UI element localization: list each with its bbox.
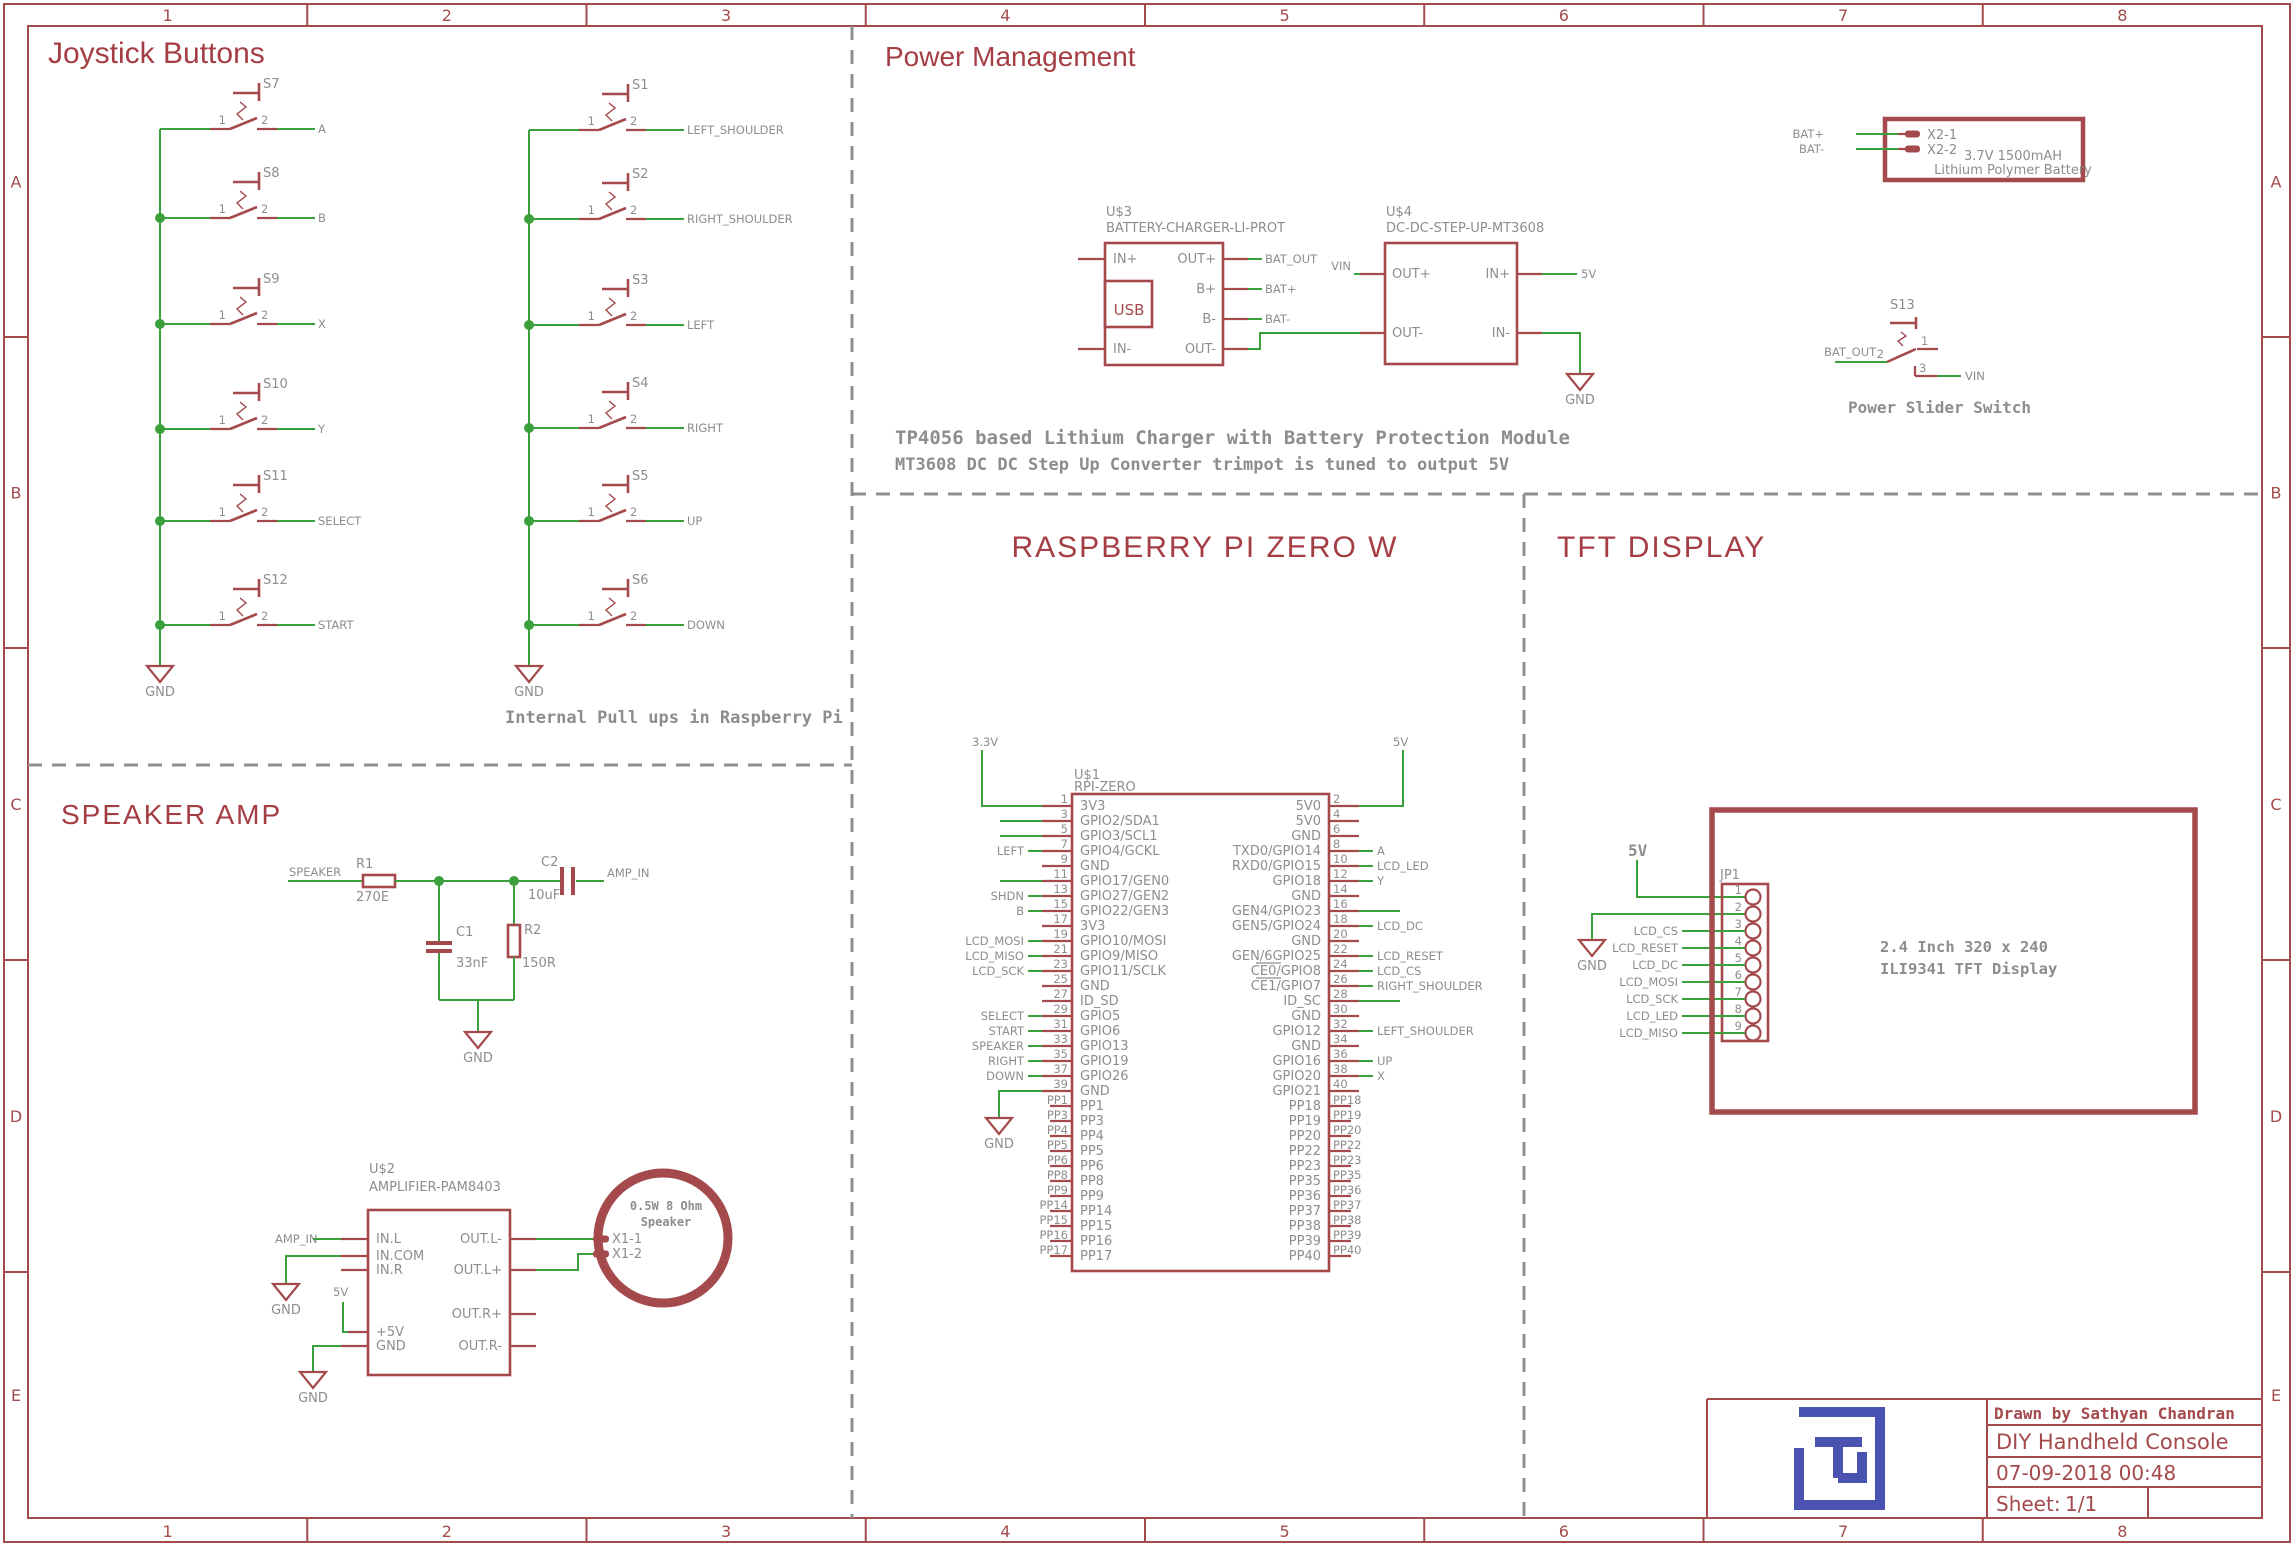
speaker-spec-line: Speaker bbox=[641, 1215, 692, 1229]
switch-s4[interactable]: 12S4 bbox=[579, 376, 649, 428]
gnd-label: GND bbox=[145, 685, 175, 700]
wire-path bbox=[1359, 750, 1403, 806]
ic-pin-label: PP40 bbox=[1289, 1249, 1321, 1264]
pin-number: 6 bbox=[1735, 968, 1742, 982]
connector-pin bbox=[593, 1236, 609, 1243]
pin-number: 27 bbox=[1053, 987, 1068, 1001]
battery-spec-line: Lithium Polymer Battery bbox=[1934, 163, 2092, 178]
power-caption-2: MT3608 DC DC Step Up Converter trimpot i… bbox=[895, 455, 1509, 475]
ic-pin-label: +5V bbox=[376, 1325, 404, 1340]
pin-number: 2 bbox=[1877, 347, 1884, 361]
pin-number: 1 bbox=[1735, 883, 1742, 897]
schematic-canvas: 1122334455667788AABBCCDDEEJoystick Butto… bbox=[0, 0, 2295, 1546]
pin-number: 1 bbox=[219, 113, 226, 127]
pin-number: 2 bbox=[630, 609, 637, 623]
rpi-section-title: RASPBERRY PI ZERO W bbox=[1012, 531, 1399, 564]
speaker-connector[interactable]: X1-1X1-20.5W 8 OhmSpeaker bbox=[593, 1173, 728, 1303]
switch-blade bbox=[230, 614, 257, 625]
frame-column-number: 2 bbox=[442, 1522, 452, 1541]
ic-u2-amplifier[interactable]: U$2AMPLIFIER-PAM8403IN.LIN.COMIN.R+5VGND… bbox=[341, 1162, 536, 1375]
connector-pin-circle bbox=[1746, 1009, 1761, 1024]
pin-number: PP15 bbox=[1039, 1213, 1068, 1227]
pin-number: 2 bbox=[1735, 900, 1742, 914]
switch-s5[interactable]: 12S5 bbox=[579, 469, 649, 521]
pin-number: 9 bbox=[1061, 852, 1068, 866]
ic-pin-label: GPIO22/GEN3 bbox=[1080, 904, 1169, 919]
gnd-label: GND bbox=[271, 1303, 301, 1318]
ic-pin-label: PP15 bbox=[1080, 1219, 1112, 1234]
gnd-label: GND bbox=[984, 1137, 1014, 1152]
pin-number: 2 bbox=[261, 505, 268, 519]
pin-number: PP39 bbox=[1333, 1228, 1362, 1242]
switch-spring bbox=[237, 191, 246, 209]
pin-number: 9 bbox=[1735, 1019, 1742, 1033]
ic-u4-boost-converter[interactable]: U$4DC-DC-STEP-UP-MT3608OUT+OUT-IN+IN- bbox=[1360, 205, 1544, 364]
pin-number: PP18 bbox=[1333, 1093, 1362, 1107]
ic-pin-label: PP9 bbox=[1080, 1189, 1104, 1204]
net-label: SELECT bbox=[318, 514, 362, 528]
switch-blade bbox=[599, 119, 626, 130]
switch-s6[interactable]: 12S6 bbox=[579, 573, 649, 625]
connector-pin-label: X2-1 bbox=[1927, 128, 1957, 143]
part-ref-label: R1 bbox=[356, 857, 373, 872]
frame-column-number: 7 bbox=[1838, 1522, 1848, 1541]
part-value-label: AMPLIFIER-PAM8403 bbox=[369, 1180, 501, 1195]
pin-number: 2 bbox=[261, 609, 268, 623]
ic-pin-label: B- bbox=[1202, 312, 1216, 327]
switch-spring bbox=[606, 298, 615, 316]
switch-ref-label: S1 bbox=[632, 78, 649, 93]
pin-number: 2 bbox=[630, 505, 637, 519]
net-label: LCD_DC bbox=[1632, 958, 1678, 972]
frame-column-number: 1 bbox=[163, 6, 173, 25]
pin-number: 18 bbox=[1333, 912, 1348, 926]
switch-blade bbox=[230, 510, 257, 521]
part-ref-label: U$3 bbox=[1106, 205, 1132, 220]
net-label: LCD_DC bbox=[1377, 919, 1423, 933]
resistor-body[interactable] bbox=[508, 925, 520, 957]
net-label: RIGHT bbox=[988, 1054, 1025, 1068]
ic-pin-label: IN.L bbox=[376, 1232, 402, 1247]
net-label: BAT_OUT bbox=[1824, 345, 1877, 359]
switch-ref-label: S11 bbox=[263, 469, 288, 484]
ic-pin-label: PP6 bbox=[1080, 1159, 1104, 1174]
net-label: BAT+ bbox=[1792, 127, 1824, 141]
gnd-label: GND bbox=[463, 1051, 493, 1066]
switch-blade bbox=[599, 614, 626, 625]
pin-number: 2 bbox=[630, 203, 637, 217]
ic-pin-label: OUT.R- bbox=[459, 1339, 503, 1354]
gnd-symbol[interactable] bbox=[147, 666, 173, 682]
switch-spring bbox=[237, 402, 246, 420]
pin-number: 21 bbox=[1053, 942, 1068, 956]
ic-pin-label: GPIO11/SCLK bbox=[1080, 964, 1166, 979]
ic-pin-label: ID_SD bbox=[1080, 994, 1119, 1009]
ic-pin-label: OUT.L- bbox=[460, 1232, 502, 1247]
net-label: LCD_MISO bbox=[1619, 1026, 1678, 1040]
ic-pin-label: B+ bbox=[1196, 282, 1216, 297]
net-label: DOWN bbox=[687, 618, 725, 632]
ic-pin-label: CE0/GPIO8 bbox=[1251, 964, 1321, 979]
pin-number: 1 bbox=[588, 505, 595, 519]
frame-column-number: 3 bbox=[721, 1522, 731, 1541]
ic-pin-label: RXD0/GPIO15 bbox=[1232, 859, 1321, 874]
connector-pin bbox=[1905, 146, 1920, 153]
pin-number: PP5 bbox=[1047, 1138, 1068, 1152]
speaker-spec-line: 0.5W 8 Ohm bbox=[630, 1199, 702, 1213]
pin-number: 2 bbox=[1333, 792, 1340, 806]
part-ref-label: R2 bbox=[524, 923, 541, 938]
ic-pin-label: GPIO20 bbox=[1272, 1069, 1321, 1084]
pin-number: PP35 bbox=[1333, 1168, 1362, 1182]
net-label: LCD_RESET bbox=[1377, 949, 1444, 963]
battery-spec-line: 3.7V 1500mAH bbox=[1964, 149, 2062, 164]
pin-number: PP9 bbox=[1047, 1183, 1068, 1197]
net-label: LCD_SCK bbox=[1626, 992, 1678, 1006]
ic-pin-label: GEN5/GPIO24 bbox=[1232, 919, 1321, 934]
net-label: DOWN bbox=[986, 1069, 1024, 1083]
pin-number: 3 bbox=[1735, 917, 1742, 931]
switch-s7[interactable]: 12S7 bbox=[210, 77, 280, 129]
frame-row-letter: A bbox=[11, 173, 22, 192]
net-label: X bbox=[318, 317, 326, 331]
gnd-symbol[interactable] bbox=[273, 1284, 299, 1300]
net-label: LCD_SCK bbox=[972, 964, 1024, 978]
net-label: START bbox=[318, 618, 354, 632]
pin-number: 20 bbox=[1333, 927, 1348, 941]
net-label: B bbox=[318, 211, 326, 225]
net-label: RIGHT_SHOULDER bbox=[687, 212, 793, 226]
switch-blade bbox=[599, 510, 626, 521]
pin-number: 8 bbox=[1333, 837, 1340, 851]
ic-pin-label: GND bbox=[376, 1339, 406, 1354]
capacitor-c2[interactable]: C210uF bbox=[528, 855, 573, 903]
ic-pin-label: GPIO21 bbox=[1272, 1084, 1321, 1099]
pin-number: 33 bbox=[1053, 1032, 1068, 1046]
net-label: LCD_MOSI bbox=[1619, 975, 1678, 989]
pin-number: 1 bbox=[588, 412, 595, 426]
pin-number: 38 bbox=[1333, 1062, 1348, 1076]
net-label: B bbox=[1016, 904, 1024, 918]
frame-inner bbox=[28, 26, 2262, 1518]
net-label: 5V bbox=[333, 1285, 348, 1299]
part-value-label: BATTERY-CHARGER-LI-PROT bbox=[1106, 221, 1285, 236]
net-label: LEFT bbox=[997, 844, 1025, 858]
wire-path bbox=[286, 1256, 341, 1284]
ic-pin-label: TXD0/GPIO14 bbox=[1232, 844, 1321, 859]
ic-pin-label: GND bbox=[1291, 1009, 1321, 1024]
ic-pin-label: GPIO6 bbox=[1080, 1024, 1120, 1039]
resistor-r1[interactable]: R1270E bbox=[356, 857, 395, 905]
net-label: A bbox=[318, 122, 326, 136]
pin-number: 1 bbox=[219, 609, 226, 623]
frame-column-number: 2 bbox=[442, 6, 452, 25]
ic-pin-label: GPIO10/MOSI bbox=[1080, 934, 1166, 949]
ic-pin-label: OUT+ bbox=[1392, 267, 1431, 282]
switch-s13-power-slider[interactable]: S13123 bbox=[1877, 298, 1938, 376]
pin-number: 31 bbox=[1053, 1017, 1068, 1031]
resistor-body[interactable] bbox=[363, 875, 395, 887]
switch-s3[interactable]: 12S3 bbox=[579, 273, 649, 325]
pin-number: PP4 bbox=[1047, 1123, 1068, 1137]
pin-number: 2 bbox=[630, 412, 637, 426]
connector-pin-circle bbox=[1746, 975, 1761, 990]
ic-pin-label: 5V0 bbox=[1296, 814, 1321, 829]
switch-s2[interactable]: 12S2 bbox=[579, 167, 649, 219]
ic-pin-label: PP38 bbox=[1289, 1219, 1321, 1234]
ic-pin-label: GPIO27/GEN2 bbox=[1080, 889, 1169, 904]
ic-pin-label: GPIO13 bbox=[1080, 1039, 1129, 1054]
resistor-r2[interactable]: R2150R bbox=[508, 923, 556, 971]
net-label: AMP_IN bbox=[275, 1232, 317, 1246]
ic-pin-label: GPIO26 bbox=[1080, 1069, 1129, 1084]
connector-pin-label: X1-2 bbox=[612, 1247, 642, 1262]
switch-ref-label: S5 bbox=[632, 469, 649, 484]
pin-number: 2 bbox=[261, 202, 268, 216]
pin-number: 39 bbox=[1053, 1077, 1068, 1091]
frame-row-letter: B bbox=[2271, 484, 2282, 503]
pin-number: 2 bbox=[261, 113, 268, 127]
switch-blade bbox=[230, 118, 257, 129]
pin-number: 11 bbox=[1053, 867, 1068, 881]
capacitor-c1[interactable]: C133nF bbox=[426, 925, 488, 971]
connector-pin bbox=[593, 1251, 609, 1258]
battery-connector[interactable]: X2-1X2-23.7V 1500mAHLithium Polymer Batt… bbox=[1885, 119, 2092, 180]
frame-column-number: 4 bbox=[1000, 1522, 1010, 1541]
ic-pin-label: PP37 bbox=[1289, 1204, 1321, 1219]
gnd-symbol[interactable] bbox=[465, 1032, 491, 1048]
ic-pin-label: IN.R bbox=[376, 1263, 403, 1278]
frame-column-number: 5 bbox=[1280, 6, 1290, 25]
pin-number: PP17 bbox=[1039, 1243, 1068, 1257]
ic-pin-label: PP8 bbox=[1080, 1174, 1104, 1189]
net-label: RIGHT bbox=[687, 421, 724, 435]
pin-number: 2 bbox=[630, 309, 637, 323]
pin-number: 28 bbox=[1333, 987, 1348, 1001]
ic-pin-label: OUT.L+ bbox=[454, 1263, 502, 1278]
ic-pin-label: PP5 bbox=[1080, 1144, 1104, 1159]
net-label: AMP_IN bbox=[607, 866, 649, 880]
pin-number: 1 bbox=[219, 202, 226, 216]
ic-pin-label: IN- bbox=[1492, 326, 1511, 341]
ic-pin-label: PP36 bbox=[1289, 1189, 1321, 1204]
pin-number: 40 bbox=[1333, 1077, 1348, 1091]
switch-spring bbox=[606, 192, 615, 210]
switch-s9[interactable]: 12S9 bbox=[210, 272, 280, 324]
pin-number: 13 bbox=[1053, 882, 1068, 896]
wire-path bbox=[313, 1346, 341, 1372]
supply-label: 5V bbox=[1393, 735, 1408, 749]
usb-label: USB bbox=[1114, 301, 1145, 319]
ic-pin-label: CE1/GPIO7 bbox=[1251, 979, 1321, 994]
ic-pin-label: GND bbox=[1291, 1039, 1321, 1054]
pin-number: 10 bbox=[1333, 852, 1348, 866]
ic-pin-label: OUT+ bbox=[1177, 252, 1216, 267]
pin-number: 5 bbox=[1061, 822, 1068, 836]
ic-pin-label: PP14 bbox=[1080, 1204, 1112, 1219]
net-label: SELECT bbox=[981, 1009, 1025, 1023]
ic-body[interactable] bbox=[1385, 243, 1517, 364]
title-block-project: DIY Handheld Console bbox=[1996, 1430, 2229, 1454]
joystick-column-right: 12S1LEFT_SHOULDER12S2RIGHT_SHOULDER12S3L… bbox=[514, 78, 793, 700]
frame-column-number: 4 bbox=[1000, 6, 1010, 25]
switch-blade bbox=[230, 313, 257, 324]
net-label: BAT- bbox=[1799, 142, 1824, 156]
net-label: LCD_RESET bbox=[1612, 941, 1679, 955]
pin-number: PP19 bbox=[1333, 1108, 1362, 1122]
pin-number: 26 bbox=[1333, 972, 1348, 986]
frame-row-letter: D bbox=[2270, 1107, 2282, 1126]
pin-number: PP6 bbox=[1047, 1153, 1068, 1167]
switch-blade bbox=[230, 207, 257, 218]
part-ref-label: JP1 bbox=[1719, 868, 1740, 883]
gnd-symbol[interactable] bbox=[1579, 940, 1605, 956]
switch-ref-label: S9 bbox=[263, 272, 280, 287]
pin-number: 6 bbox=[1333, 822, 1340, 836]
pin-number: 23 bbox=[1053, 957, 1068, 971]
title-block-sheet-value: 1/1 bbox=[2065, 1492, 2097, 1516]
frame-row-letter: C bbox=[2270, 795, 2281, 814]
gnd-symbol[interactable] bbox=[516, 666, 542, 682]
pin-number: 32 bbox=[1333, 1017, 1348, 1031]
pin-number: 5 bbox=[1735, 951, 1742, 965]
switch-ref-label: S6 bbox=[632, 573, 649, 588]
net-label: LCD_MOSI bbox=[965, 934, 1024, 948]
switch-spring bbox=[237, 494, 246, 512]
pin-number: 4 bbox=[1735, 934, 1742, 948]
ic-pin-label: PP35 bbox=[1289, 1174, 1321, 1189]
switch-ref-label: S7 bbox=[263, 77, 280, 92]
ic-pin-label: GPIO12 bbox=[1272, 1024, 1321, 1039]
pin-number: PP36 bbox=[1333, 1183, 1362, 1197]
frame-row-letter: E bbox=[2271, 1386, 2281, 1405]
tft-display-section: 5VGNDJP1123456789LCD_CSLCD_RESETLCD_DCLC… bbox=[1577, 810, 2195, 1112]
frame-column-number: 5 bbox=[1280, 1522, 1290, 1541]
ic-pin-label: PP23 bbox=[1289, 1159, 1321, 1174]
gnd-label: GND bbox=[1565, 393, 1595, 408]
pin-number: 14 bbox=[1333, 882, 1348, 896]
pin-number: 1 bbox=[1921, 334, 1928, 348]
net-label: X bbox=[1377, 1069, 1385, 1083]
net-label: VIN bbox=[1331, 259, 1351, 273]
net-label: LCD_CS bbox=[1377, 964, 1421, 978]
pin-number: PP22 bbox=[1333, 1138, 1362, 1152]
switch-ref-label: S3 bbox=[632, 273, 649, 288]
ic-pin-label: GPIO5 bbox=[1080, 1009, 1120, 1024]
joystick-caption: Internal Pull ups in Raspberry Pi bbox=[505, 708, 843, 728]
ic-pin-label: GPIO3/SCL1 bbox=[1080, 829, 1157, 844]
slider-caption: Power Slider Switch bbox=[1848, 398, 2031, 417]
title-block-date: 07-09-2018 00:48 bbox=[1996, 1461, 2176, 1485]
pin-number: PP38 bbox=[1333, 1213, 1362, 1227]
ic-pin-label: IN+ bbox=[1113, 252, 1137, 267]
gnd-symbol[interactable] bbox=[1567, 374, 1593, 390]
connector-pin-circle bbox=[1746, 992, 1761, 1007]
wire-path bbox=[982, 750, 1042, 806]
net-label: BAT+ bbox=[1265, 282, 1297, 296]
frame-row-letter: D bbox=[10, 1107, 22, 1126]
ic-pin-label: OUT- bbox=[1392, 326, 1423, 341]
ic-pin-label: 3V3 bbox=[1080, 919, 1105, 934]
part-value-label: DC-DC-STEP-UP-MT3608 bbox=[1386, 221, 1544, 236]
ic-pin-label: GEN/6GPIO25 bbox=[1232, 949, 1321, 964]
supply-label: 5V bbox=[1628, 841, 1648, 860]
pin-number: 7 bbox=[1061, 837, 1068, 851]
display-spec-line: 2.4 Inch 320 x 240 bbox=[1880, 938, 2048, 956]
ic-pin-label: OUT.R+ bbox=[452, 1307, 502, 1322]
pin-number: 17 bbox=[1053, 912, 1068, 926]
ic-pin-label: PP16 bbox=[1080, 1234, 1112, 1249]
joystick-caption: Internal Pull ups in Raspberry Pi bbox=[505, 708, 843, 728]
net-label: BAT- bbox=[1265, 312, 1290, 326]
pin-number: PP1 bbox=[1047, 1093, 1068, 1107]
pin-number: 1 bbox=[588, 309, 595, 323]
connector-pin-circle bbox=[1746, 924, 1761, 939]
ic-pin-label: PP22 bbox=[1289, 1144, 1321, 1159]
connector-pin-circle bbox=[1746, 907, 1761, 922]
switch-spring bbox=[237, 102, 246, 120]
pin-number: PP16 bbox=[1039, 1228, 1068, 1242]
net-label: LEFT_SHOULDER bbox=[687, 123, 784, 137]
switch-s11[interactable]: 12S11 bbox=[210, 469, 288, 521]
switch-s8[interactable]: 12S8 bbox=[210, 166, 280, 218]
connector-pin-label: X1-1 bbox=[612, 1232, 642, 1247]
pin-number: 1 bbox=[588, 203, 595, 217]
pin-number: 2 bbox=[630, 114, 637, 128]
pin-number: 2 bbox=[261, 308, 268, 322]
tft-display-module[interactable]: 2.4 Inch 320 x 240ILI9341 TFT Display bbox=[1712, 810, 2195, 1112]
ic-pin-label: ID_SC bbox=[1283, 994, 1321, 1009]
pin-number: 29 bbox=[1053, 1002, 1068, 1016]
ic-pin-label: GPIO16 bbox=[1272, 1054, 1321, 1069]
pin-number: 3 bbox=[1061, 807, 1068, 821]
pin-number: PP14 bbox=[1039, 1198, 1068, 1212]
ic-u3-battery-charger[interactable]: U$3BATTERY-CHARGER-LI-PROTUSBIN+IN-OUT+B… bbox=[1078, 205, 1285, 365]
ic-pin-label: GND bbox=[1291, 829, 1321, 844]
part-ref-label: C2 bbox=[541, 855, 558, 870]
net-label: LCD_CS bbox=[1634, 924, 1678, 938]
pin-number: 2 bbox=[261, 413, 268, 427]
net-label: UP bbox=[1377, 1054, 1392, 1068]
ic-pin-label: GND bbox=[1080, 859, 1110, 874]
wire-path bbox=[343, 1302, 348, 1332]
ic-pin-label: GEN4/GPIO23 bbox=[1232, 904, 1321, 919]
gnd-symbol[interactable] bbox=[986, 1118, 1012, 1134]
ic-pin-label: GPIO17/GEN0 bbox=[1080, 874, 1169, 889]
ic-pin-label: GND bbox=[1291, 889, 1321, 904]
switch-spring bbox=[606, 401, 615, 419]
frame-column-number: 6 bbox=[1559, 1522, 1569, 1541]
net-label: BAT_OUT bbox=[1265, 252, 1318, 266]
net-label: 5V bbox=[1581, 267, 1596, 281]
connector-pin-circle bbox=[1746, 941, 1761, 956]
pin-number: 25 bbox=[1053, 972, 1068, 986]
switch-s1[interactable]: 12S1 bbox=[579, 78, 649, 130]
part-value-label: 33nF bbox=[456, 956, 488, 971]
switch-s10[interactable]: 12S10 bbox=[210, 377, 288, 429]
switch-spring bbox=[1898, 332, 1906, 346]
switch-s12[interactable]: 12S12 bbox=[210, 573, 288, 625]
logo[interactable] bbox=[1799, 1412, 1880, 1505]
part-ref-label: U$4 bbox=[1386, 205, 1412, 220]
gnd-symbol[interactable] bbox=[300, 1372, 326, 1388]
ic-pin-label: 5V0 bbox=[1296, 799, 1321, 814]
connector-pin bbox=[1905, 131, 1920, 138]
net-label: LEFT bbox=[687, 318, 715, 332]
ic-u1-rpi-zero-header[interactable]: 3.3V5VU$1RPI-ZERO13V325V03GPIO2/SDA145V0… bbox=[965, 735, 1482, 1271]
part-ref-label: U$2 bbox=[369, 1162, 395, 1177]
switch-spring bbox=[606, 598, 615, 616]
